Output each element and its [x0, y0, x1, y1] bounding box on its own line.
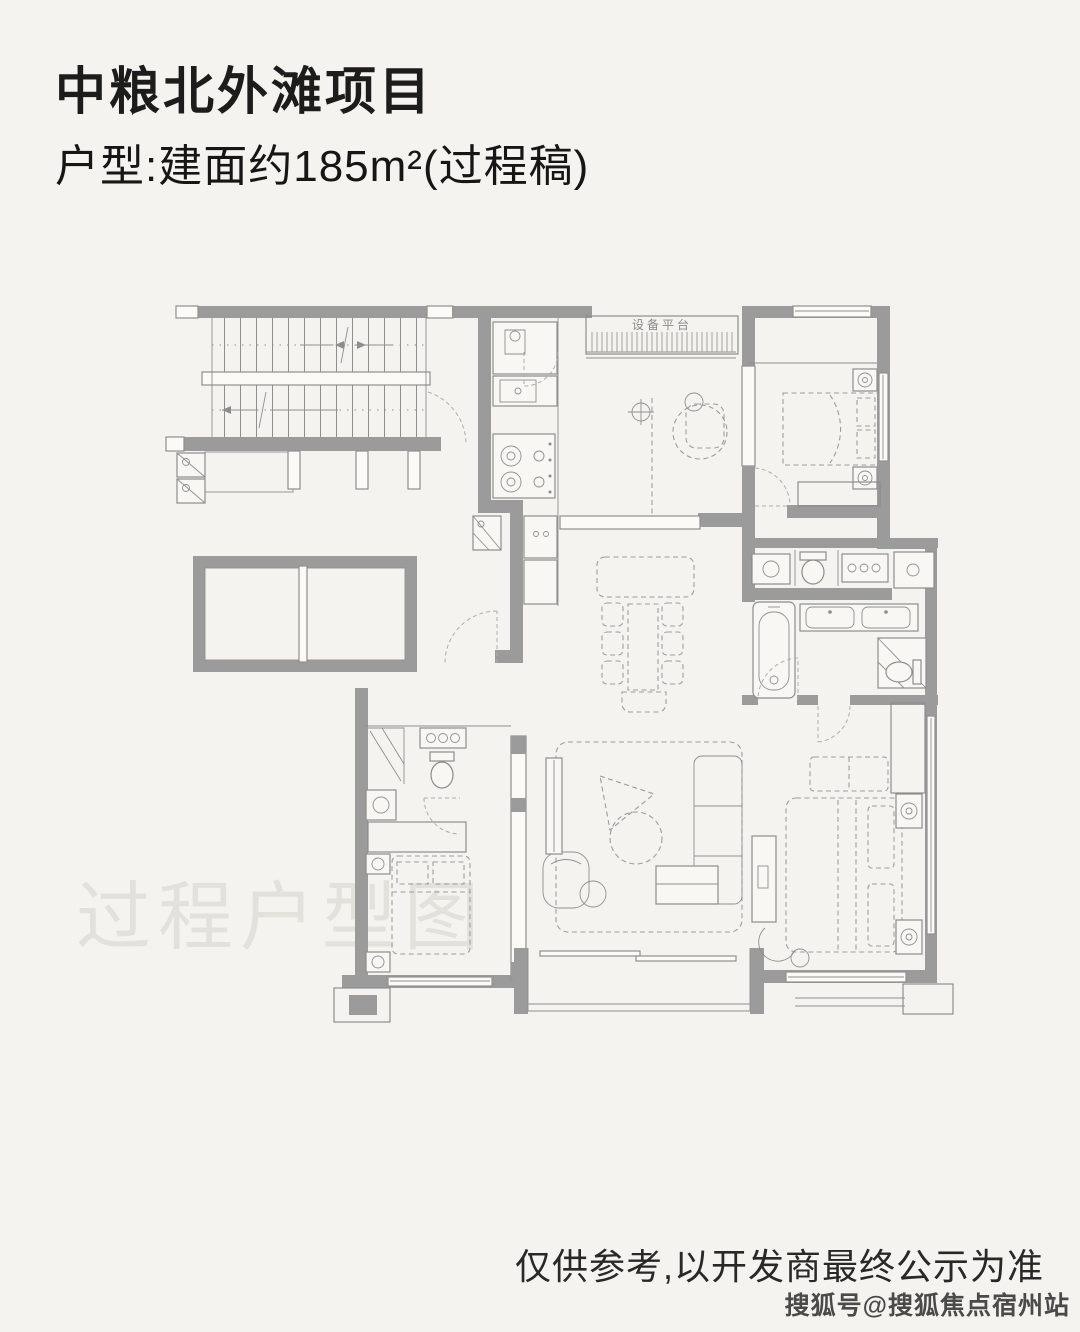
equipment-platform: 设备平台 — [586, 316, 738, 354]
sohu-watermark: 搜狐号@搜狐焦点宿州站 — [785, 1286, 1070, 1322]
staircase — [166, 306, 466, 503]
living-room — [543, 742, 742, 932]
disclaimer: 仅供参考,以开发商最终公示为准 — [515, 1238, 1044, 1290]
equipment-platform-label: 设备平台 — [632, 317, 692, 332]
master-bedroom — [752, 703, 953, 1014]
guest-bathroom — [752, 550, 934, 588]
master-bathroom — [753, 602, 926, 700]
elevator-shafts — [193, 556, 417, 672]
entry-foyer — [445, 516, 501, 663]
page: 中粮北外滩项目 户型:建面约185m²(过程稿) 过程户型图 — [0, 0, 1080, 1332]
study-room — [628, 393, 727, 516]
utility-meters — [177, 453, 205, 503]
kitchen — [493, 322, 558, 604]
bedroom-2 — [755, 369, 880, 506]
dining-area — [597, 557, 694, 712]
floor-plan: 设备平台 — [0, 0, 1080, 1332]
